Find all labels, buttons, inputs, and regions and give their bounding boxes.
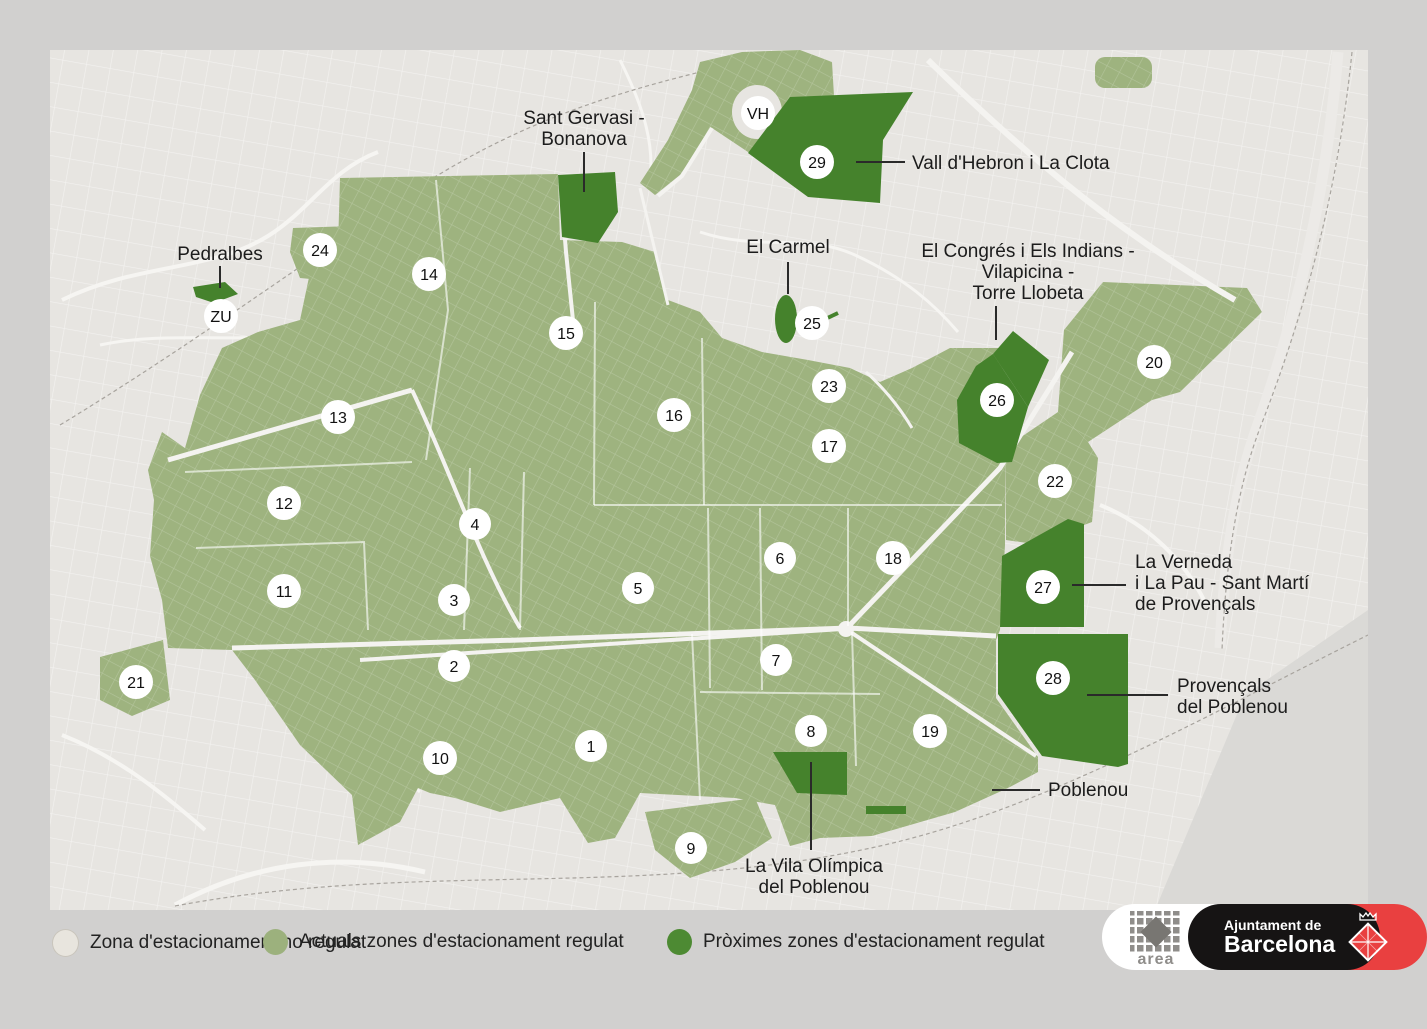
zone-marker-label: 12 bbox=[275, 496, 293, 513]
zone-marker-20: 20 bbox=[1137, 345, 1171, 379]
legend-item-proximes: Pròximes zones d'estacionament regulat bbox=[667, 929, 1045, 955]
zone-el-carmel bbox=[775, 295, 797, 343]
zone-marker-21: 21 bbox=[119, 665, 153, 699]
zone-marker-5: 5 bbox=[622, 572, 654, 604]
zone-marker-16: 16 bbox=[657, 398, 691, 432]
map-label-vila-olimpica: La Vila Olímpicadel Poblenou bbox=[745, 856, 883, 898]
legend-label: Actuals zones d'estacionament regulat bbox=[299, 931, 624, 953]
zone-marker-13: 13 bbox=[321, 400, 355, 434]
zone-marker-label: 8 bbox=[807, 724, 816, 741]
map-label-sant-gervasi: Sant Gervasi -Bonanova bbox=[523, 108, 644, 150]
zone-marker-ZU: ZU bbox=[204, 299, 238, 333]
zone-marker-1: 1 bbox=[575, 730, 607, 762]
zone-marker-22: 22 bbox=[1038, 464, 1072, 498]
zone-marker-label: 11 bbox=[276, 584, 293, 601]
zone-marker-4: 4 bbox=[459, 508, 491, 540]
zone-marker-label: 1 bbox=[587, 739, 596, 756]
zone-marker-6: 6 bbox=[764, 542, 796, 574]
map-label-vall-hebron: Vall d'Hebron i La Clota bbox=[912, 153, 1110, 174]
zone-marker-label: 4 bbox=[471, 517, 480, 534]
zone-marker-18: 18 bbox=[876, 541, 910, 575]
zone-marker-label: 13 bbox=[329, 410, 347, 427]
map-label-pedralbes: Pedralbes bbox=[177, 244, 263, 265]
zone-marker-label: 21 bbox=[127, 675, 145, 692]
zone-marker-label: 14 bbox=[420, 267, 438, 284]
zone-marker-19: 19 bbox=[913, 714, 947, 748]
barcelona-crest-icon bbox=[1345, 909, 1391, 965]
zone-marker-label: 5 bbox=[634, 581, 643, 598]
zone-marker-label: 2 bbox=[450, 659, 459, 676]
legend-item-actuals: Actuals zones d'estacionament regulat bbox=[263, 929, 624, 955]
zone-marker-29: 29 bbox=[800, 145, 834, 179]
zone-marker-label: 7 bbox=[772, 653, 781, 670]
legend-swatch-no-regulat bbox=[52, 929, 79, 957]
zone-marker-7: 7 bbox=[760, 644, 792, 676]
zone-marker-28: 28 bbox=[1036, 661, 1070, 695]
zone-marker-27: 27 bbox=[1026, 570, 1060, 604]
zone-marker-label: 26 bbox=[988, 393, 1006, 410]
legend-label: Pròximes zones d'estacionament regulat bbox=[703, 931, 1045, 953]
zone-marker-label: 24 bbox=[311, 243, 329, 260]
map-label-poblenou: Poblenou bbox=[1048, 780, 1128, 801]
zone-marker-label: 25 bbox=[803, 316, 821, 333]
zone-marker-8: 8 bbox=[795, 715, 827, 747]
zone-marker-label: 16 bbox=[665, 408, 683, 425]
zone-marker-label: 20 bbox=[1145, 355, 1163, 372]
zone-marker-label: 10 bbox=[431, 751, 449, 768]
zone-marker-VH: VH bbox=[741, 96, 775, 130]
zone-marker-14: 14 bbox=[412, 257, 446, 291]
svg-text:area: area bbox=[1138, 951, 1175, 966]
zone-topright-area bbox=[1095, 57, 1152, 88]
legend-swatch-actuals bbox=[263, 929, 288, 955]
zone-marker-label: 22 bbox=[1046, 474, 1064, 491]
area-logo-icon: area bbox=[1128, 909, 1184, 966]
zone-marker-label: 18 bbox=[884, 551, 902, 568]
zone-marker-label: 17 bbox=[820, 439, 838, 456]
zone-marker-label: 15 bbox=[557, 326, 575, 343]
zone-marker-24: 24 bbox=[303, 233, 337, 267]
zone-marker-label: 9 bbox=[687, 841, 696, 858]
zone-marker-3: 3 bbox=[438, 584, 470, 616]
zone-marker-label: 28 bbox=[1044, 671, 1062, 688]
zone-marker-label: 3 bbox=[450, 593, 459, 610]
map-label-el-carmel: El Carmel bbox=[746, 237, 829, 258]
zone-marker-11: 11 bbox=[267, 574, 301, 608]
zone-marker-label: 19 bbox=[921, 724, 939, 741]
zone-marker-17: 17 bbox=[812, 429, 846, 463]
zone-marker-26: 26 bbox=[980, 383, 1014, 417]
zone-marker-10: 10 bbox=[423, 741, 457, 775]
zone-marker-label: VH bbox=[747, 106, 769, 123]
map-panel: 1234567891011121314151617181920212223242… bbox=[50, 50, 1368, 910]
zone-marker-label: 6 bbox=[776, 551, 785, 568]
logo-bar: Ajuntament de Barcelona area bbox=[1102, 904, 1427, 970]
zone-marker-2: 2 bbox=[438, 650, 470, 682]
zone-marker-9: 9 bbox=[675, 832, 707, 864]
zone-marker-15: 15 bbox=[549, 316, 583, 350]
zone-small-bar bbox=[866, 806, 906, 814]
zone-marker-label: ZU bbox=[210, 309, 231, 326]
legend-swatch-proximes bbox=[667, 929, 692, 955]
barcelona-map: 1234567891011121314151617181920212223242… bbox=[50, 50, 1368, 910]
zone-marker-23: 23 bbox=[812, 369, 846, 403]
zone-marker-25: 25 bbox=[795, 306, 829, 340]
zone-marker-label: 27 bbox=[1034, 580, 1052, 597]
zone-marker-label: 23 bbox=[820, 379, 838, 396]
zone-marker-label: 29 bbox=[808, 155, 826, 172]
zone-marker-12: 12 bbox=[267, 486, 301, 520]
